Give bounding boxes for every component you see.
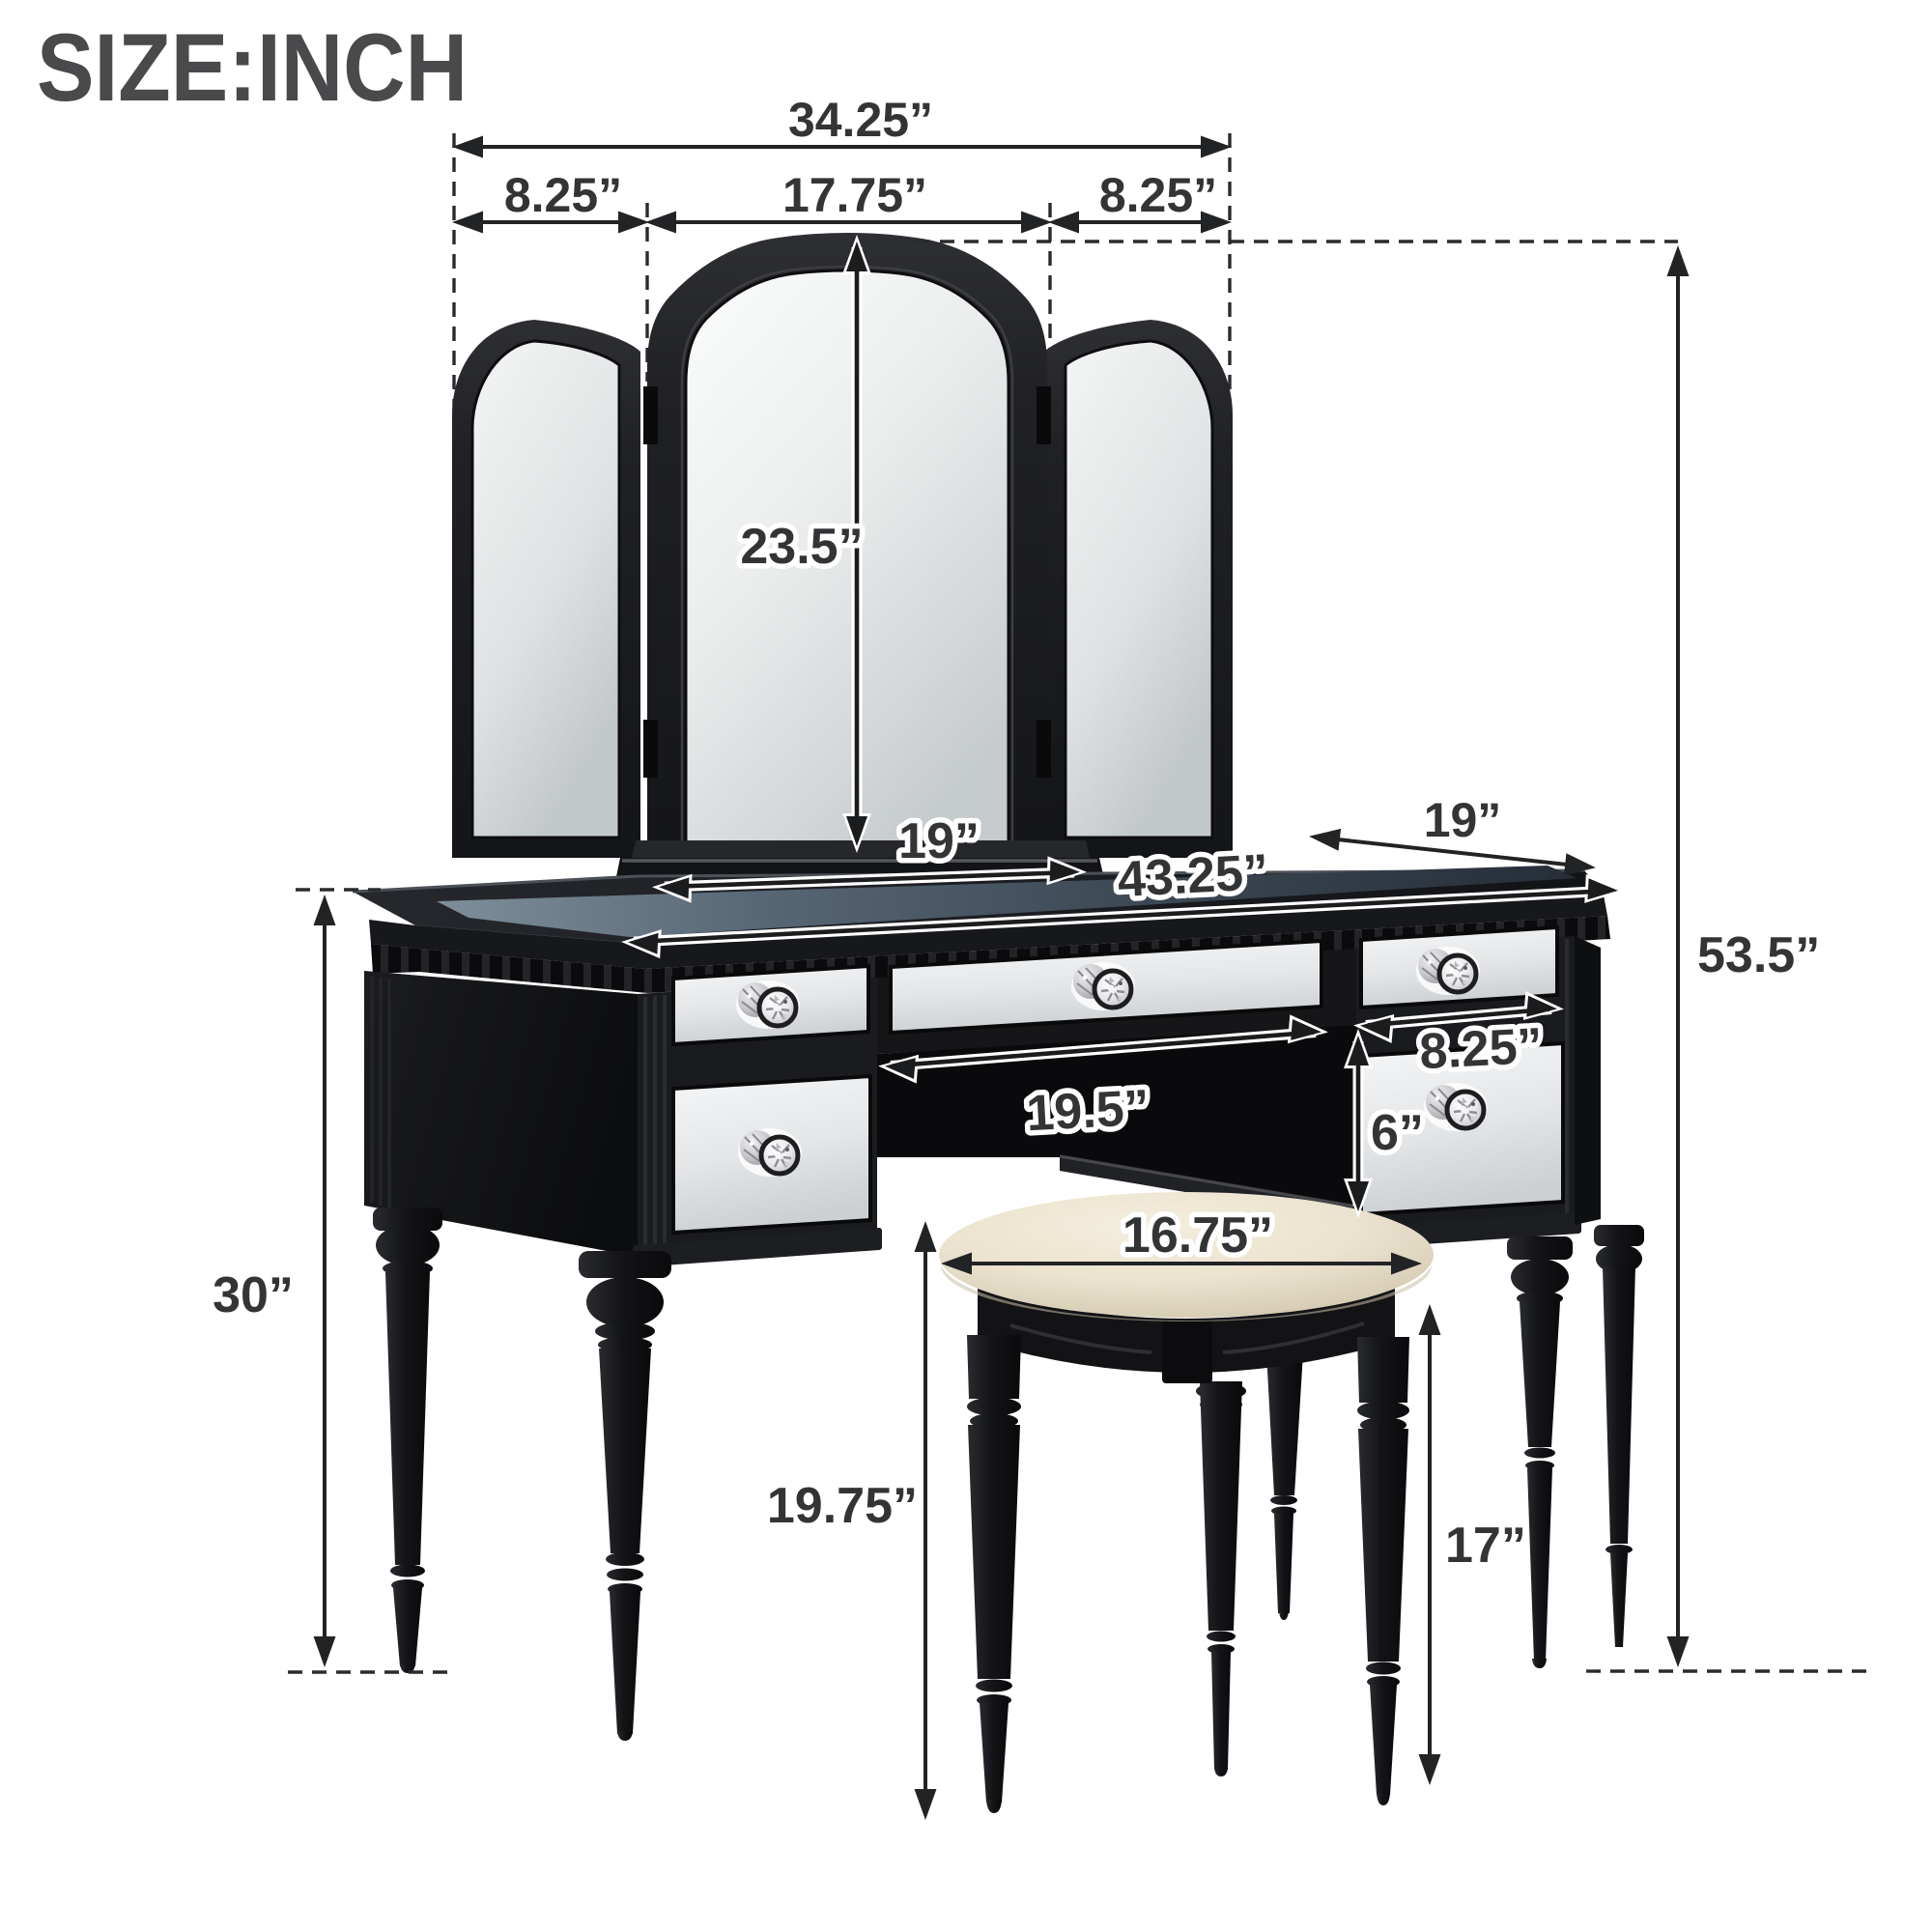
svg-text:53.5”: 53.5” <box>1697 927 1820 983</box>
svg-text:17.75”: 17.75” <box>782 168 927 222</box>
svg-text:19.75”: 19.75” <box>767 1478 918 1534</box>
svg-text:8.25”: 8.25” <box>504 168 622 222</box>
svg-text:43.25”: 43.25” <box>1116 844 1269 908</box>
svg-text:SIZE:INCH: SIZE:INCH <box>37 14 468 121</box>
svg-text:19”: 19” <box>898 813 980 869</box>
svg-text:16.75”: 16.75” <box>1122 1207 1273 1264</box>
svg-text:30”: 30” <box>213 1267 294 1323</box>
svg-text:8.25”: 8.25” <box>1418 1018 1544 1081</box>
svg-text:17”: 17” <box>1445 1518 1526 1574</box>
svg-text:19.5”: 19.5” <box>1025 1080 1151 1143</box>
svg-text:6”: 6” <box>1371 1105 1424 1161</box>
svg-text:19”: 19” <box>1424 793 1502 847</box>
svg-text:8.25”: 8.25” <box>1099 168 1217 222</box>
svg-text:23.5”: 23.5” <box>740 519 863 575</box>
svg-text:34.25”: 34.25” <box>788 93 933 147</box>
